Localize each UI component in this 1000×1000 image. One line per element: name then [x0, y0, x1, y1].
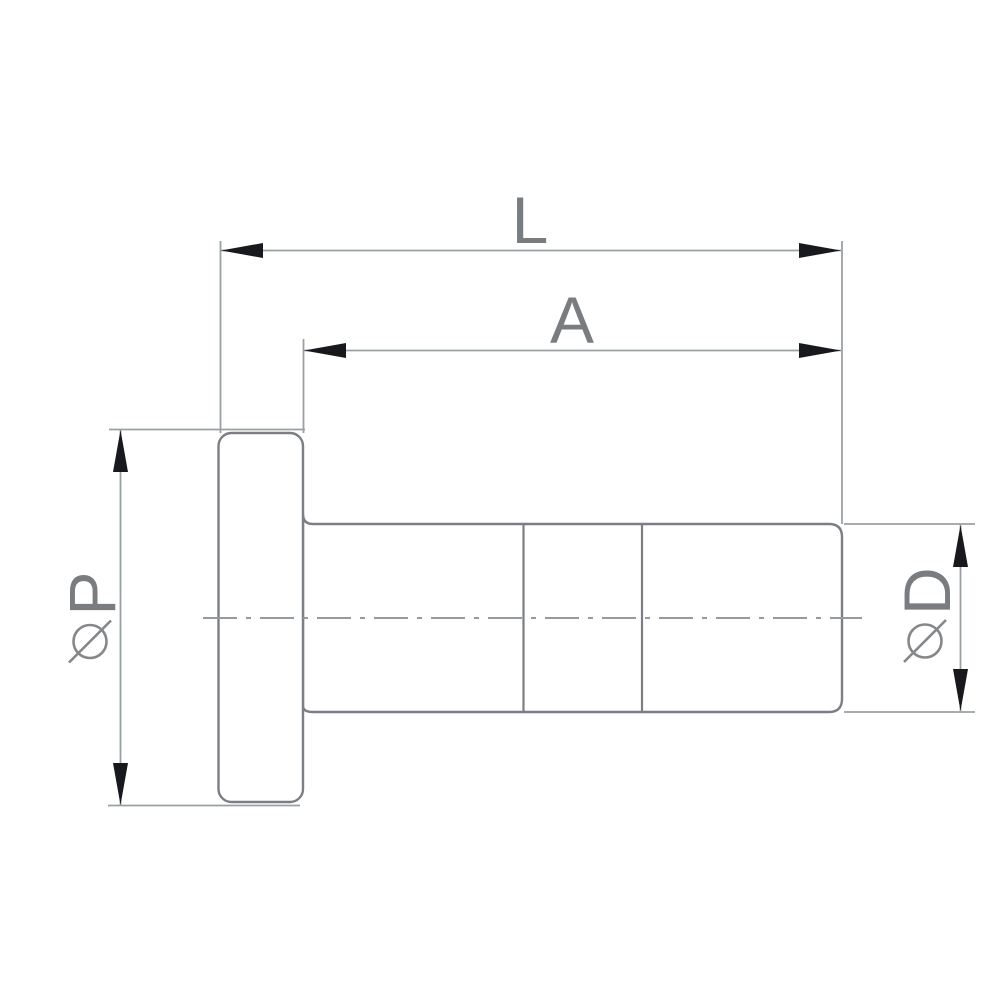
part-outline-group [203, 433, 862, 802]
dim-P-arrowhead-bottom [113, 763, 128, 805]
dimension-L: L [221, 183, 843, 524]
dim-L-label: L [512, 183, 549, 257]
dim-L-arrowhead-left [221, 243, 263, 258]
dim-D-arrowhead-top [953, 525, 968, 567]
dim-D-label: D [890, 567, 964, 662]
dimension-D: D [844, 524, 975, 712]
dim-A-arrowhead-right [799, 343, 841, 358]
diameter-symbol-slash [904, 620, 946, 662]
diameter-symbol-slash [69, 621, 111, 663]
dim-P-letter: P [55, 571, 129, 615]
body-outline [303, 514, 842, 712]
technical-drawing-canvas: L A P [0, 0, 1000, 1000]
dim-P-label: P [55, 571, 129, 662]
dim-A-arrowhead-left [304, 343, 346, 358]
drawing-area: L A P [0, 0, 1000, 1000]
dim-L-arrowhead-right [799, 243, 841, 258]
dim-D-letter: D [890, 567, 964, 615]
dim-P-arrowhead-top [113, 430, 128, 472]
dim-D-arrowhead-bottom [953, 669, 968, 711]
dimension-A: A [304, 283, 842, 433]
dim-A-label: A [550, 283, 594, 357]
